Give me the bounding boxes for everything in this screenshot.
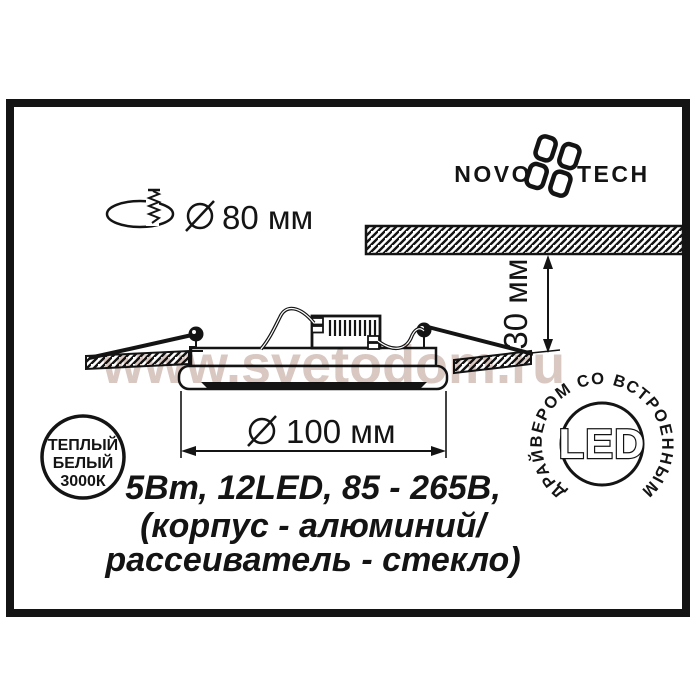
watermark: www.svetodom.ru [101,335,565,395]
logo-text-novo: NOVO [454,161,532,187]
spec-line-2: (корпус - алюминий/ [140,507,489,545]
ceiling-section [366,226,683,254]
spec-text: 5Вт, 12LED, 85 - 265В, (корпус - алюмини… [104,469,520,579]
diagram-canvas: NOVO TECH 80 мм 30 мм [0,0,700,700]
warm-badge-line3: 3000К [60,473,106,490]
product-diagram-page: NOVO TECH 80 мм 30 мм [0,0,700,700]
cutout-diameter-label: 80 мм [222,199,313,236]
warm-white-badge: ТЕПЛЫЙ БЕЛЫЙ 3000К [42,416,124,498]
warm-badge-line2: БЕЛЫЙ [53,453,114,472]
logo-text-tech: TECH [577,161,650,187]
led-label: LED [559,420,646,467]
spec-line-1: 5Вт, 12LED, 85 - 265В, [125,469,501,507]
spec-line-3: рассеиватель - стекло) [104,541,520,579]
warm-badge-line1: ТЕПЛЫЙ [48,435,118,454]
width-label: 100 мм [286,413,396,450]
